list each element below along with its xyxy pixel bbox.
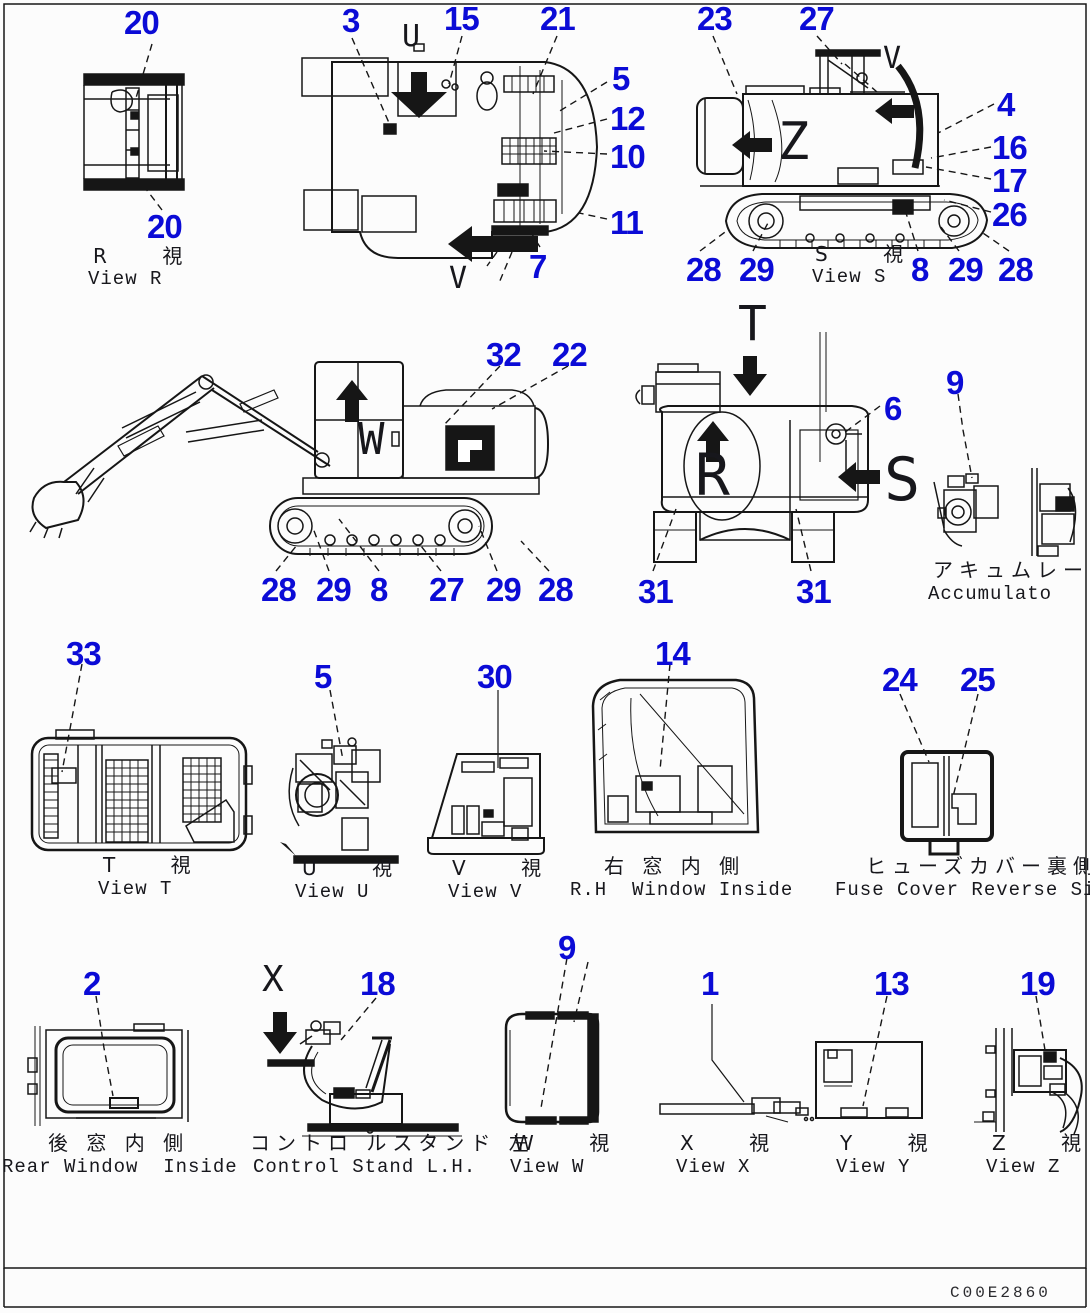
rear-window-label-jp: 後 窓 内 側 [48, 1133, 189, 1153]
callout-11: 11 [610, 206, 643, 239]
callout-4: 4 [997, 88, 1014, 121]
view-s-label-jp: S 視 [815, 244, 909, 264]
view-y-label-en: View Y [836, 1158, 910, 1177]
fuse-cover-drawing [900, 694, 992, 854]
view-v-label-jp: V 視 [452, 858, 547, 878]
callout-29: 29 [316, 573, 351, 606]
view-z-drawing [974, 996, 1082, 1134]
line-art-layer [0, 0, 1090, 1313]
fuse-cover-label-jp: ヒューズカバー裏側 [866, 856, 1090, 876]
direction-letter-s: S [884, 450, 920, 510]
callout-30: 30 [477, 660, 512, 693]
view-r-label-en: View R [88, 270, 162, 289]
callout-22: 22 [552, 338, 587, 371]
view-u-label-en: View U [295, 883, 369, 902]
callout-29: 29 [948, 253, 983, 286]
accumulator-label-jp: アキュムレータ [933, 560, 1090, 580]
view-t-drawing [32, 664, 252, 850]
callout-3: 3 [342, 4, 359, 37]
callout-24: 24 [882, 663, 917, 696]
view-t-label-jp: T 視 [103, 855, 197, 875]
callout-28: 28 [261, 573, 296, 606]
rh-window-label-en: R.H Window Inside [570, 881, 793, 900]
view-s-drawing [697, 36, 1009, 251]
view-u-drawing [280, 690, 398, 863]
callout-2: 2 [83, 967, 100, 1000]
callout-15: 15 [444, 2, 479, 35]
view-w-label-jp: W 視 [514, 1133, 615, 1153]
control-stand-drawing [263, 998, 462, 1136]
view-z-label-jp: Z 視 [992, 1133, 1087, 1153]
callout-32: 32 [486, 338, 521, 371]
machine-top-view-drawing [302, 36, 607, 283]
rear-window-inside-drawing [28, 996, 188, 1126]
direction-letter-t: T [738, 300, 767, 348]
callout-20: 20 [147, 210, 182, 243]
callout-21: 21 [540, 2, 575, 35]
callout-23: 23 [697, 2, 732, 35]
rh-window-inside-drawing [593, 664, 758, 832]
view-u-label-jp: U 視 [302, 858, 398, 878]
rear-view-s-arrow [838, 462, 880, 492]
direction-letter-u: U [402, 22, 420, 52]
drawing-number: C00E2860 [950, 1285, 1051, 1301]
view-t-label-en: View T [98, 880, 172, 899]
machine-rear-view-drawing [636, 332, 880, 571]
rear-window-label-en: Rear Window Inside [2, 1158, 238, 1177]
view-w-drawing [506, 958, 598, 1124]
view-x-drawing [660, 1004, 814, 1122]
view-y-drawing [816, 996, 922, 1118]
counterweight-direction-arrow [732, 131, 772, 159]
view-u-direction-arrow [391, 72, 447, 118]
direction-letter-r: R [695, 446, 730, 504]
callout-19: 19 [1020, 967, 1055, 1000]
direction-letter-z: Z [778, 116, 809, 168]
callout-26: 26 [992, 198, 1027, 231]
callout-14: 14 [655, 637, 690, 670]
callout-6: 6 [884, 392, 901, 425]
callout-28: 28 [538, 573, 573, 606]
direction-letter-v: V [883, 44, 901, 74]
view-x-label-en: View X [676, 1158, 750, 1177]
rh-window-label-jp: 右 窓 内 側 [604, 856, 745, 876]
view-r-drawing [84, 44, 184, 210]
direction-letter-v: V [449, 264, 467, 294]
callout-31: 31 [796, 575, 831, 608]
view-v-label-en: View V [448, 883, 522, 902]
callout-29: 29 [739, 253, 774, 286]
callout-20: 20 [124, 6, 159, 39]
callout-28: 28 [686, 253, 721, 286]
callout-18: 18 [360, 967, 395, 1000]
callout-7: 7 [529, 250, 546, 283]
callout-33: 33 [66, 637, 101, 670]
accumulator-drawing [934, 394, 1076, 556]
callout-31: 31 [638, 575, 673, 608]
callout-5: 5 [612, 62, 629, 95]
accumulator-label-en: Accumulato [928, 585, 1052, 604]
callout-27: 27 [429, 573, 464, 606]
callout-5: 5 [314, 660, 331, 693]
view-s-label-en: View S [812, 268, 886, 287]
callout-1: 1 [701, 967, 718, 1000]
direction-letter-x: X [262, 962, 284, 998]
fuse-cover-label-en: Fuse Cover Reverse Side [835, 881, 1090, 900]
callout-29: 29 [486, 573, 521, 606]
control-stand-label-en: Control Stand L.H. [253, 1158, 476, 1177]
callout-17: 17 [992, 164, 1027, 197]
callout-9: 9 [558, 931, 575, 964]
excavator-side-view-drawing [30, 362, 568, 571]
callout-25: 25 [960, 663, 995, 696]
callout-12: 12 [610, 102, 645, 135]
callout-13: 13 [874, 967, 909, 1000]
callout-27: 27 [799, 2, 834, 35]
view-r-label-jp: R 視 [93, 246, 188, 266]
view-x-direction-arrow [263, 1012, 297, 1054]
control-stand-label-jp: コントロ ルスタンド 左 [250, 1133, 535, 1153]
callout-8: 8 [911, 253, 928, 286]
callout-10: 10 [610, 140, 645, 173]
callout-8: 8 [370, 573, 387, 606]
view-z-label-en: View Z [986, 1158, 1060, 1177]
callout-9: 9 [946, 366, 963, 399]
callout-28: 28 [998, 253, 1033, 286]
view-t-direction-arrow [733, 356, 767, 396]
view-v-drawing [428, 690, 544, 854]
parts-catalog-sheet: 20 3 15 21 5 12 10 11 7 20 23 27 4 16 17… [0, 0, 1090, 1313]
view-w-label-en: View W [510, 1158, 584, 1177]
view-y-label-jp: Y 視 [840, 1133, 934, 1153]
view-s-direction-arrow [875, 98, 914, 124]
direction-letter-w: W [358, 418, 385, 462]
callout-16: 16 [992, 131, 1027, 164]
view-x-label-jp: X 視 [680, 1133, 775, 1153]
